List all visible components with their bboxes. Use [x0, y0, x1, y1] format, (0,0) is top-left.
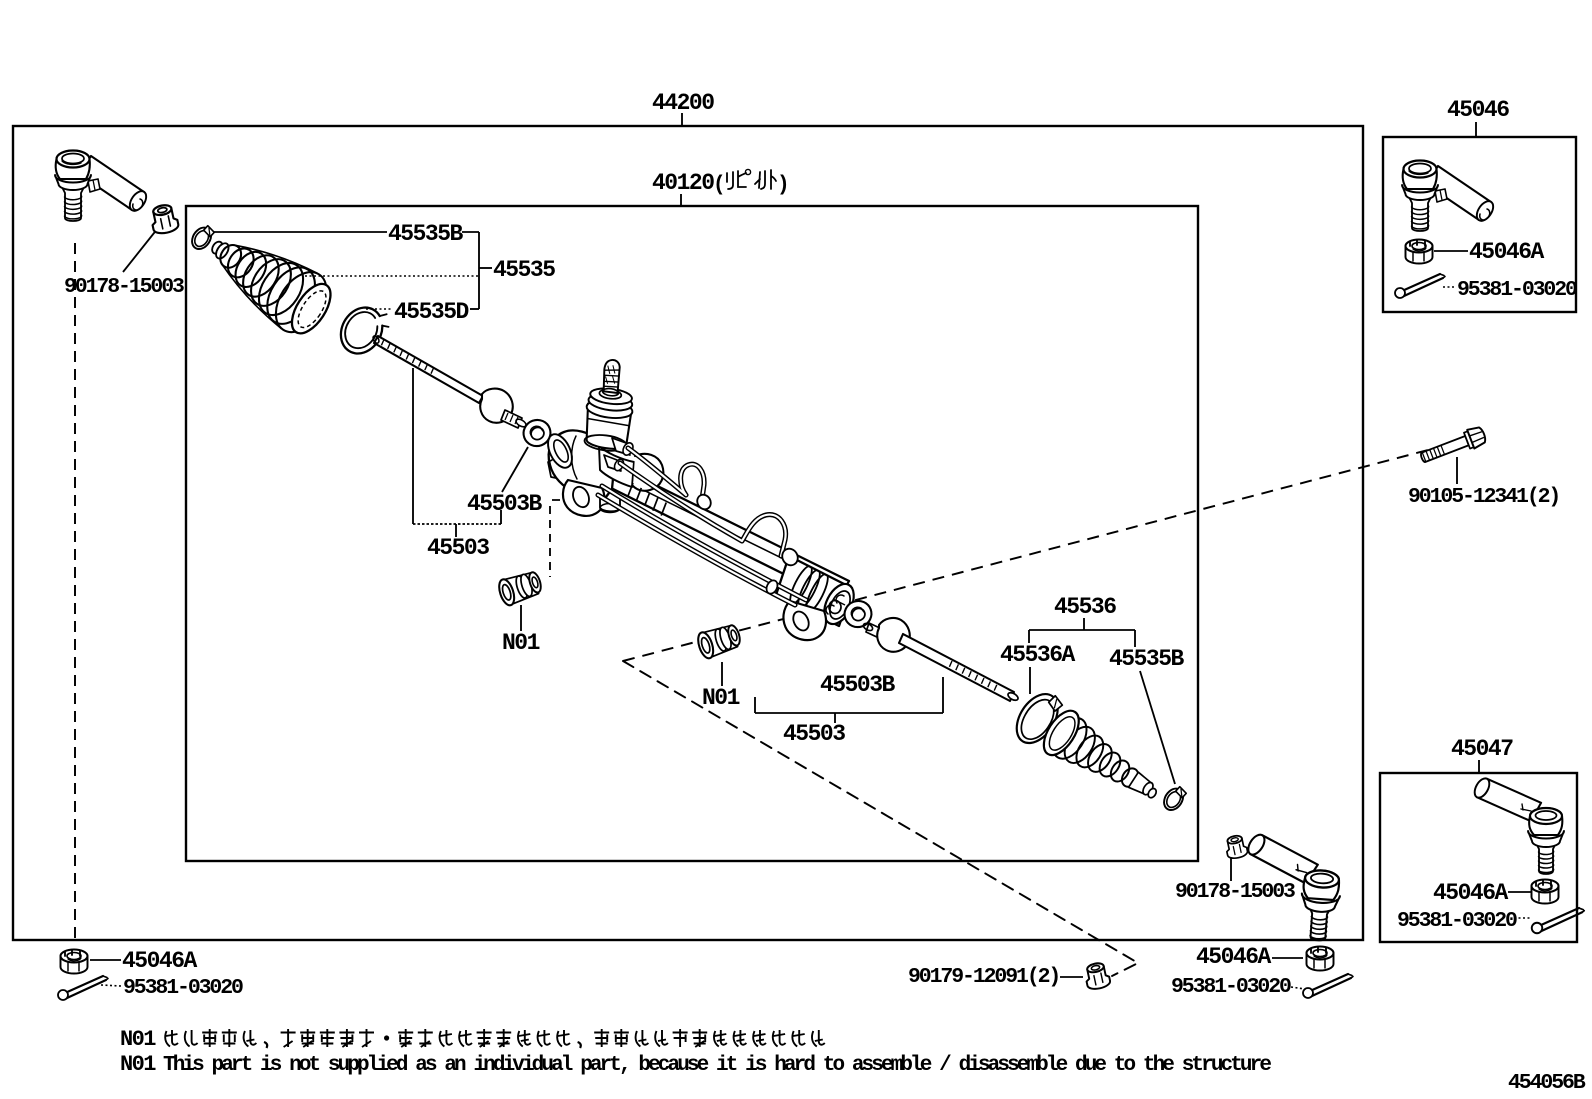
svg-text:90178-15003: 90178-15003: [1175, 880, 1295, 904]
svg-text:45503: 45503: [783, 721, 845, 747]
svg-text:45535: 45535: [493, 257, 555, 283]
svg-text:90179-12091(2): 90179-12091(2): [908, 965, 1059, 989]
svg-text:44200: 44200: [652, 90, 714, 116]
svg-text:95381-03020: 95381-03020: [1457, 278, 1577, 302]
svg-text:N01: N01: [702, 685, 740, 711]
svg-text:45046: 45046: [1447, 97, 1509, 123]
svg-text:454056B: 454056B: [1508, 1071, 1586, 1095]
svg-text:95381-03020: 95381-03020: [123, 976, 243, 1000]
svg-text:N01: N01: [502, 630, 540, 656]
svg-text:90105-12341(2): 90105-12341(2): [1408, 485, 1559, 509]
svg-text:95381-03020: 95381-03020: [1171, 975, 1291, 999]
svg-text:45046A: 45046A: [1196, 944, 1272, 970]
svg-text:45046A: 45046A: [1433, 880, 1509, 906]
svg-text:45536: 45536: [1054, 594, 1116, 620]
svg-text:45503B: 45503B: [820, 672, 896, 698]
svg-text:45503B: 45503B: [467, 491, 543, 517]
svg-text:40120: 40120: [652, 170, 714, 196]
svg-text:45046A: 45046A: [122, 948, 198, 974]
svg-text:N01: N01: [120, 1027, 156, 1052]
svg-text:95381-03020: 95381-03020: [1397, 909, 1517, 933]
svg-text:45046A: 45046A: [1469, 239, 1545, 265]
svg-text:45535B: 45535B: [388, 221, 464, 247]
svg-text:This part is not supplied as a: This part is not supplied as an individu…: [163, 1054, 1271, 1077]
svg-text:): ): [777, 174, 788, 197]
svg-text:90178-15003: 90178-15003: [64, 275, 184, 299]
svg-text:45535B: 45535B: [1109, 646, 1185, 672]
svg-text:45536A: 45536A: [1000, 642, 1076, 668]
svg-text:45047: 45047: [1451, 736, 1513, 762]
svg-text:45535D: 45535D: [394, 299, 469, 325]
svg-text:N01: N01: [120, 1052, 156, 1077]
svg-text:(: (: [713, 174, 724, 197]
svg-text:45503: 45503: [427, 535, 489, 561]
